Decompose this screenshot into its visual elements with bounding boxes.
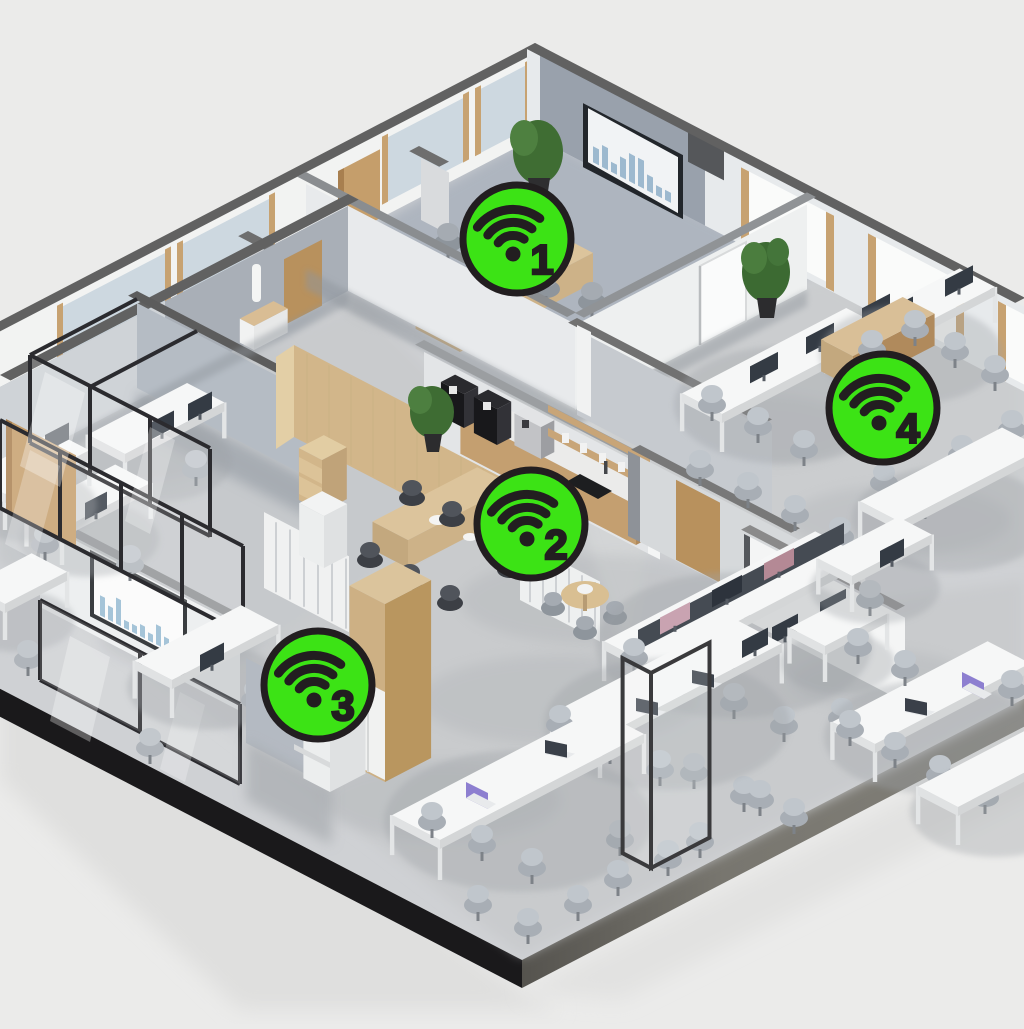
svg-text:4: 4 — [896, 405, 920, 452]
svg-text:3: 3 — [331, 682, 354, 729]
svg-text:1: 1 — [530, 236, 553, 283]
svg-text:2: 2 — [544, 521, 567, 568]
